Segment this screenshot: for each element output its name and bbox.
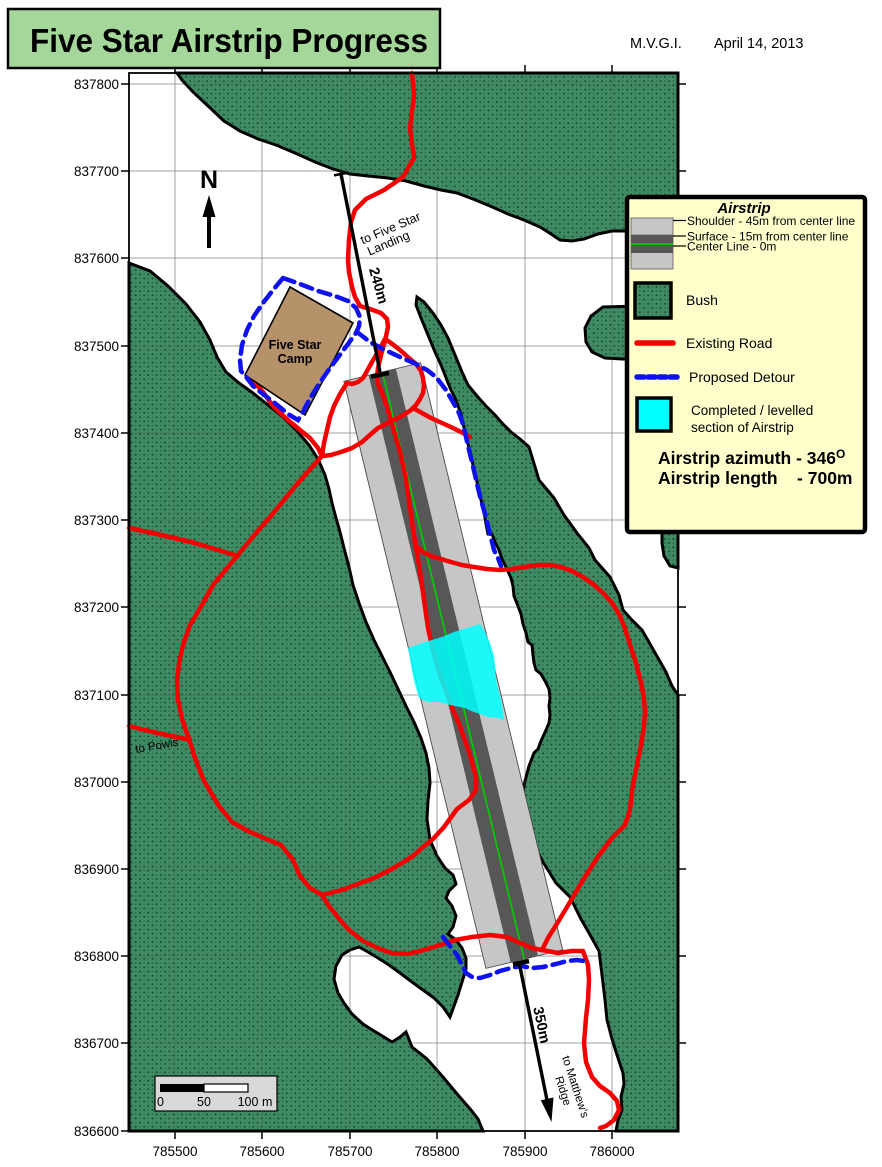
svg-text:837200: 837200	[74, 600, 119, 615]
svg-text:Existing Road: Existing Road	[686, 335, 772, 351]
svg-text:Completed / levelled: Completed / levelled	[691, 403, 813, 418]
svg-text:Airstrip azimuth - 346O: Airstrip azimuth - 346O	[658, 447, 845, 468]
svg-text:837100: 837100	[74, 688, 119, 703]
svg-text:837000: 837000	[74, 775, 119, 790]
svg-text:M.V.G.I.: M.V.G.I.	[630, 36, 682, 52]
svg-text:837300: 837300	[74, 513, 119, 528]
svg-text:786000: 786000	[589, 1144, 634, 1159]
svg-text:836900: 836900	[74, 862, 119, 877]
svg-text:Airstrip length - 700m: Airstrip length - 700m	[658, 468, 852, 488]
svg-text:m: m	[262, 1095, 272, 1109]
svg-text:0: 0	[157, 1095, 164, 1109]
svg-text:785700: 785700	[327, 1144, 372, 1159]
svg-text:100: 100	[238, 1095, 259, 1109]
svg-text:Camp: Camp	[278, 352, 313, 366]
svg-text:Center Line - 0m: Center Line - 0m	[687, 240, 776, 254]
svg-text:836800: 836800	[74, 949, 119, 964]
svg-text:837400: 837400	[74, 426, 119, 441]
svg-text:837600: 837600	[74, 251, 119, 266]
svg-text:section of Airstrip: section of Airstrip	[691, 420, 794, 435]
svg-text:Proposed Detour: Proposed Detour	[689, 369, 795, 385]
svg-text:837700: 837700	[74, 164, 119, 179]
svg-text:837500: 837500	[74, 339, 119, 354]
svg-text:Five Star: Five Star	[269, 338, 322, 352]
svg-text:785900: 785900	[502, 1144, 547, 1159]
svg-text:N: N	[200, 166, 218, 194]
svg-text:Five Star Airstrip Progress: Five Star Airstrip Progress	[30, 22, 428, 59]
svg-text:Shoulder - 45m from center lin: Shoulder - 45m from center line	[687, 214, 855, 228]
svg-text:836600: 836600	[74, 1124, 119, 1139]
svg-text:April 14, 2013: April 14, 2013	[714, 36, 803, 52]
svg-text:837800: 837800	[74, 77, 119, 92]
svg-text:785500: 785500	[152, 1144, 197, 1159]
svg-text:Bush: Bush	[686, 292, 718, 308]
svg-text:50: 50	[197, 1095, 211, 1109]
svg-text:836700: 836700	[74, 1036, 119, 1051]
svg-text:785800: 785800	[414, 1144, 459, 1159]
svg-text:785600: 785600	[239, 1144, 284, 1159]
